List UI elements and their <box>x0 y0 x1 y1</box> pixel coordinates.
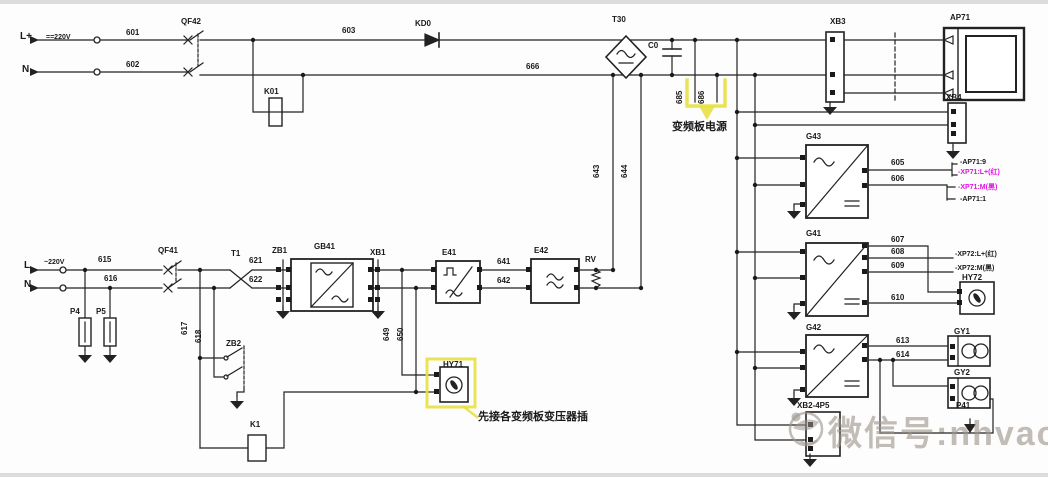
k1-loop-wire <box>200 392 434 448</box>
label-rectifier-t30: T30 <box>612 16 626 24</box>
label-wire-643: 643 <box>593 165 601 178</box>
junction-dots <box>83 38 895 394</box>
xb4-connector <box>948 103 966 143</box>
label-indicator-hy71: HY71 <box>443 361 463 369</box>
label-connector-xb4: XB4 <box>946 94 962 102</box>
label-connector-xb1: XB1 <box>370 249 386 257</box>
label-terminal-n-top: N <box>22 65 29 75</box>
label-arrester-p5: P5 <box>96 308 106 316</box>
label-terminal-l-plus: L+ <box>20 32 32 42</box>
label-ann-hy71-callout: 先接各变频板变压器插 <box>478 412 588 423</box>
label-wire-607: 607 <box>891 236 904 244</box>
label-wire-641: 641 <box>497 258 510 266</box>
label-ann-inverter-power: 变频板电源 <box>672 122 727 133</box>
zb2-contact <box>224 346 244 396</box>
qf42-breaker <box>184 31 203 76</box>
label-converter-g43: G43 <box>806 133 821 141</box>
label-module-ap71: AP71 <box>950 14 970 22</box>
label-wire-615: 615 <box>98 256 111 264</box>
label-ac-220v: ~220V <box>44 259 64 266</box>
label-wire-649: 649 <box>383 328 391 341</box>
ap71-module <box>944 28 1024 100</box>
xb4-wires <box>737 112 953 146</box>
e41-converter <box>436 261 480 303</box>
label-indicator-hy72: HY72 <box>962 274 982 282</box>
watermark-text: 微信号:nhvaca <box>828 406 1048 455</box>
label-wire-666: 666 <box>526 63 539 71</box>
label-connector-xb3: XB3 <box>830 18 846 26</box>
label-dc-220v: ==220V <box>46 34 71 41</box>
label-diode-kd0: KD0 <box>415 20 431 28</box>
label-ref-xp72-l: -XP72:L+(红) <box>955 251 997 258</box>
label-wire-650: 650 <box>397 328 405 341</box>
label-contact-zb2: ZB2 <box>226 340 241 348</box>
gb41-converter <box>291 259 373 311</box>
dc-bus-vertical-wires <box>737 40 808 440</box>
g42-converter <box>806 335 868 397</box>
schematic-page: L+==220VN601602QF42K01603KD0666T30C06856… <box>0 0 1048 477</box>
label-terminal-l: L <box>24 261 30 271</box>
label-ref-xp72-m: -XP72:M(黑) <box>955 265 994 272</box>
label-relay-k1: K1 <box>250 421 260 429</box>
label-capacitor-c0: C0 <box>648 42 658 50</box>
label-wire-613: 613 <box>896 337 909 345</box>
terminal-arrows <box>30 36 39 292</box>
label-fan-gy2: GY2 <box>954 369 970 377</box>
label-wire-686: 686 <box>698 91 706 104</box>
label-connector-xb2-4p5: XB2-4P5 <box>797 402 829 410</box>
label-wire-609: 609 <box>891 262 904 270</box>
c0-capacitor <box>663 49 681 56</box>
kd0-diode <box>425 33 439 47</box>
label-breaker-qf42: QF42 <box>181 18 201 26</box>
label-wire-605: 605 <box>891 159 904 167</box>
qf41-breaker <box>164 261 181 292</box>
label-wire-644: 644 <box>621 165 629 178</box>
label-ref-ap71-1: -AP71:1 <box>960 196 986 203</box>
label-wire-610: 610 <box>891 294 904 302</box>
g43-converter <box>806 145 868 218</box>
label-wire-606: 606 <box>891 175 904 183</box>
label-ref-xp71-l: -XP71:L+(红) <box>958 169 1000 176</box>
dc-bus-top-wires <box>38 40 944 93</box>
label-wire-602: 602 <box>126 61 139 69</box>
k01-relay <box>269 98 282 126</box>
label-converter-g42: G42 <box>806 324 821 332</box>
hy72-indicator <box>960 282 994 314</box>
label-converter-e41: E41 <box>442 249 456 257</box>
t30-rectifier <box>606 36 646 78</box>
label-transformer-t1: T1 <box>231 250 240 258</box>
label-ref-ap71-9: -AP71:9 <box>960 159 986 166</box>
label-converter-g41: G41 <box>806 230 821 238</box>
label-wire-616: 616 <box>104 275 117 283</box>
label-wire-617: 617 <box>181 322 189 335</box>
label-wire-642: 642 <box>497 277 510 285</box>
label-wire-621: 621 <box>249 257 262 265</box>
label-ref-xp71-m: -XP71:M(黑) <box>958 184 997 191</box>
label-wire-603: 603 <box>342 27 355 35</box>
label-converter-gb41: GB41 <box>314 243 335 251</box>
label-wire-608: 608 <box>891 248 904 256</box>
label-wire-622: 622 <box>249 276 262 284</box>
label-wire-614: 614 <box>896 351 909 359</box>
label-fan-gy1: GY1 <box>954 328 970 336</box>
label-wire-601: 601 <box>126 29 139 37</box>
rv-zigzag <box>592 270 600 288</box>
label-relay-k01: K01 <box>264 88 279 96</box>
p4-arrester <box>79 318 91 346</box>
label-wire-618: 618 <box>195 330 203 343</box>
hy71-indicator <box>440 367 468 402</box>
label-arrester-p4: P4 <box>70 308 80 316</box>
label-connector-zb1: ZB1 <box>272 247 287 255</box>
inverter-power-arrow <box>699 106 715 120</box>
label-terminal-n-bot: N <box>24 280 31 290</box>
g41-converter <box>806 243 868 316</box>
label-varistor-rv: RV <box>585 256 596 264</box>
mains-wires <box>38 270 230 288</box>
left-vertical-wires <box>200 270 224 448</box>
k1-relay <box>248 435 266 461</box>
inverter-power-highlight <box>687 80 725 106</box>
label-wire-685: 685 <box>676 91 684 104</box>
plug-circles <box>60 37 100 291</box>
label-breaker-qf41: QF41 <box>158 247 178 255</box>
p5-arrester <box>104 318 116 346</box>
gy1-fan <box>948 336 990 366</box>
e42-converter <box>531 259 579 303</box>
label-converter-e42: E42 <box>534 247 548 255</box>
